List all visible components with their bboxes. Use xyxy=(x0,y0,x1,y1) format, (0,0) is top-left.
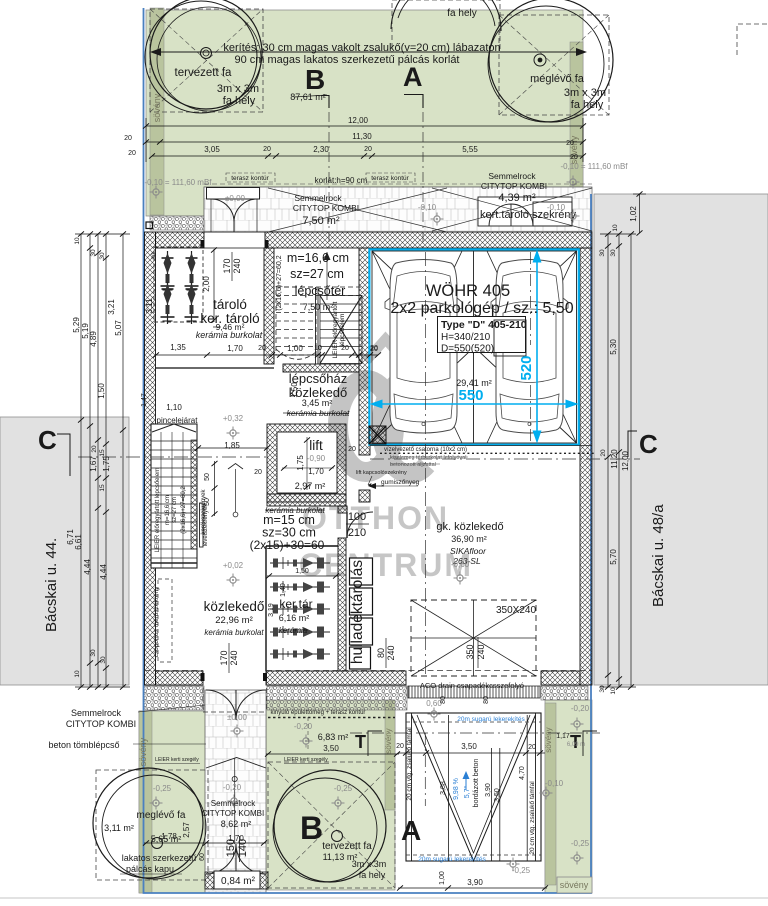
svg-text:7,50 m²: 7,50 m² xyxy=(302,215,340,227)
svg-text:20: 20 xyxy=(370,346,378,353)
svg-text:3,90: 3,90 xyxy=(467,878,483,887)
svg-text:(2x16,6)+27=60,2: (2x16,6)+27=60,2 xyxy=(276,255,283,310)
svg-text:80: 80 xyxy=(376,648,386,658)
svg-text:Semmelrock: Semmelrock xyxy=(71,708,122,718)
svg-text:3,50: 3,50 xyxy=(494,788,501,802)
svg-text:-0,25: -0,25 xyxy=(153,784,172,793)
svg-text:15: 15 xyxy=(99,449,106,457)
svg-text:3,11: 3,11 xyxy=(145,298,154,314)
svg-text:30: 30 xyxy=(90,649,97,657)
svg-text:20: 20 xyxy=(348,446,356,453)
svg-text:20: 20 xyxy=(263,146,271,153)
svg-text:3m x 3m: 3m x 3m xyxy=(352,859,387,869)
svg-text:3m x 3m: 3m x 3m xyxy=(564,87,606,99)
svg-text:1,40: 1,40 xyxy=(280,583,287,597)
svg-text:Semmelrock: Semmelrock xyxy=(294,193,342,203)
svg-text:-0,25: -0,25 xyxy=(334,784,353,793)
svg-text:20: 20 xyxy=(566,140,574,147)
svg-text:kerámia burkolat: kerámia burkolat xyxy=(196,330,263,340)
svg-text:1,75: 1,75 xyxy=(296,455,305,471)
svg-text:LEIER előregyártott lépcsőelem: LEIER előregyártott lépcsőelem xyxy=(155,468,161,552)
svg-text:kerítés: 30 cm magas vakolt zs: kerítés: 30 cm magas vakolt zsalukő(v=20… xyxy=(223,42,500,54)
svg-text:1,35: 1,35 xyxy=(170,343,186,352)
svg-text:B: B xyxy=(305,64,325,95)
svg-text:20m sugarú lekerekítés: 20m sugarú lekerekítés xyxy=(418,856,486,863)
svg-text:-0,20: -0,20 xyxy=(294,722,313,731)
svg-text:B: B xyxy=(300,810,323,846)
svg-text:1,00: 1,00 xyxy=(287,344,303,353)
svg-text:10: 10 xyxy=(74,237,81,245)
svg-text:4,39 m²: 4,39 m² xyxy=(498,192,536,204)
svg-text:Semmelrock: Semmelrock xyxy=(211,799,256,808)
svg-text:50: 50 xyxy=(204,473,211,481)
svg-text:tervezett fa: tervezett fa xyxy=(322,841,372,852)
svg-text:D=550(520): D=550(520) xyxy=(441,344,494,355)
svg-text:4,44: 4,44 xyxy=(99,564,108,580)
svg-text:-0,20: -0,20 xyxy=(223,783,242,792)
svg-text:36,90 m²: 36,90 m² xyxy=(451,534,487,544)
svg-text:WÖHR 405: WÖHR 405 xyxy=(426,282,510,300)
svg-text:5,65 m²: 5,65 m² xyxy=(151,834,182,844)
svg-text:1,70: 1,70 xyxy=(308,467,324,476)
svg-text:2,00: 2,00 xyxy=(202,276,211,292)
svg-text:6,09 m: 6,09 m xyxy=(567,742,585,748)
svg-text:3,11 m²: 3,11 m² xyxy=(104,823,134,833)
svg-text:-0,10: -0,10 xyxy=(547,203,566,212)
svg-text:20: 20 xyxy=(341,345,349,352)
svg-text:(2x16,6)+27=60,2: (2x16,6)+27=60,2 xyxy=(181,486,187,534)
svg-text:3,50: 3,50 xyxy=(461,742,477,751)
svg-text:60: 60 xyxy=(199,853,206,861)
svg-text:1,00: 1,00 xyxy=(439,871,446,885)
svg-text:lift kapcsolószekrény: lift kapcsolószekrény xyxy=(356,470,407,476)
svg-text:meglévő fa: meglévő fa xyxy=(137,810,186,821)
svg-text:kerámia burkolat: kerámia burkolat xyxy=(287,408,350,418)
svg-text:kerámia: kerámia xyxy=(279,626,308,635)
svg-text:520: 520 xyxy=(518,355,535,380)
svg-text:240: 240 xyxy=(232,258,242,273)
svg-text:5,29: 5,29 xyxy=(72,317,81,333)
svg-text:sövény: sövény xyxy=(152,93,162,122)
svg-text:12,00: 12,00 xyxy=(348,116,369,125)
svg-text:6,83 m²: 6,83 m² xyxy=(318,732,349,742)
svg-text:sz=27 cm: sz=27 cm xyxy=(290,267,344,281)
svg-text:170: 170 xyxy=(219,650,229,665)
svg-text:240: 240 xyxy=(386,645,396,660)
svg-text:C: C xyxy=(639,429,658,459)
svg-text:15: 15 xyxy=(99,484,106,492)
svg-text:1,67: 1,67 xyxy=(89,456,98,472)
svg-text:(2x15)+30=60: (2x15)+30=60 xyxy=(250,538,325,552)
svg-text:3,19: 3,19 xyxy=(268,603,275,617)
svg-text:80: 80 xyxy=(483,696,490,704)
svg-text:20: 20 xyxy=(258,345,266,352)
svg-text:20: 20 xyxy=(570,154,578,161)
svg-text:LEIER előregyártott: LEIER előregyártott xyxy=(332,301,339,358)
svg-text:1,50: 1,50 xyxy=(290,382,299,398)
svg-text:+0,32: +0,32 xyxy=(223,414,244,423)
svg-text:5,70: 5,70 xyxy=(609,549,618,565)
svg-text:20m sugarú lekerekítés: 20m sugarú lekerekítés xyxy=(457,716,525,723)
svg-text:lift: lift xyxy=(309,438,323,453)
svg-text:3,50: 3,50 xyxy=(323,744,339,753)
svg-text:hulladéktárolás: hulladéktárolás xyxy=(349,560,366,665)
svg-text:240: 240 xyxy=(476,644,486,659)
svg-text:csoportos mérőszekrény: csoportos mérőszekrény xyxy=(153,586,160,658)
svg-text:2,30: 2,30 xyxy=(313,145,329,154)
svg-text:30: 30 xyxy=(99,252,106,260)
svg-text:20: 20 xyxy=(91,445,98,453)
svg-text:CITYTOP KOMBI: CITYTOP KOMBI xyxy=(293,203,359,213)
svg-text:30: 30 xyxy=(100,656,107,664)
svg-text:meglévő fa: meglévő fa xyxy=(530,73,585,85)
svg-text:5,7°: 5,7° xyxy=(463,786,471,799)
svg-text:1,85: 1,85 xyxy=(224,441,240,450)
svg-text:tervezett fa: tervezett fa xyxy=(175,67,232,79)
svg-text:1,10: 1,10 xyxy=(166,403,182,412)
svg-text:30: 30 xyxy=(151,252,158,260)
svg-text:1,70: 1,70 xyxy=(227,344,243,353)
svg-text:1,50: 1,50 xyxy=(295,568,309,575)
svg-text:-0,10 = 111,60 mBf: -0,10 = 111,60 mBf xyxy=(144,178,212,187)
svg-text:kiselemes térburkolat lefolyóv: kiselemes térburkolat lefolyóval xyxy=(390,455,466,461)
svg-text:90 cm magas lakatos szerkezet: 90 cm magas lakatos szerkezetű pálcás ko… xyxy=(235,54,460,66)
svg-text:+0,02: +0,02 xyxy=(223,561,244,570)
svg-text:3m x 3m: 3m x 3m xyxy=(217,83,259,95)
svg-text:kerékszekrények: kerékszekrények xyxy=(201,488,207,534)
svg-text:A: A xyxy=(403,62,423,92)
svg-text:m=16,6 cm: m=16,6 cm xyxy=(165,495,171,525)
svg-text:ker.tár: ker.tár xyxy=(279,597,312,611)
svg-text:CITYTOP KOMBI: CITYTOP KOMBI xyxy=(481,181,547,191)
svg-text:sövény: sövény xyxy=(544,727,553,752)
svg-text:5,07: 5,07 xyxy=(114,320,123,336)
svg-text:5,55: 5,55 xyxy=(462,145,478,154)
svg-text:C: C xyxy=(38,425,57,455)
svg-text:-0,90: -0,90 xyxy=(307,454,326,463)
svg-text:20: 20 xyxy=(124,135,132,142)
svg-text:80: 80 xyxy=(440,696,447,704)
svg-text:1,47: 1,47 xyxy=(141,393,148,407)
svg-text:11,30: 11,30 xyxy=(352,132,372,141)
svg-text:1,75: 1,75 xyxy=(102,456,111,472)
svg-text:350X240: 350X240 xyxy=(496,605,536,616)
svg-text:fa hely: fa hely xyxy=(359,870,386,880)
svg-text:20: 20 xyxy=(128,150,136,157)
svg-text:3,90: 3,90 xyxy=(485,783,492,797)
svg-text:H=340/210: H=340/210 xyxy=(441,332,491,343)
svg-text:20 cm vtg. zsalukő támfal: 20 cm vtg. zsalukő támfal xyxy=(406,727,413,801)
svg-text:-0,10: -0,10 xyxy=(545,779,564,788)
svg-text:CITYTOP KOMBI: CITYTOP KOMBI xyxy=(202,809,264,818)
svg-text:20: 20 xyxy=(600,449,607,457)
svg-text:9,98 %: 9,98 % xyxy=(453,778,460,800)
svg-text:3,88: 3,88 xyxy=(440,781,447,795)
svg-text:terasz kontúr: terasz kontúr xyxy=(371,175,409,182)
svg-text:vízelvezető csatorna (10x2 cm): vízelvezető csatorna (10x2 cm) xyxy=(384,447,467,453)
svg-text:pincelejárat: pincelejárat xyxy=(157,416,199,425)
svg-text:4,70: 4,70 xyxy=(519,766,526,780)
svg-text:lépcsőtér: lépcsőtér xyxy=(295,284,346,298)
svg-text:T: T xyxy=(355,732,366,752)
svg-text:pálcás kapu: pálcás kapu xyxy=(126,864,174,874)
svg-text:150: 150 xyxy=(225,839,237,857)
svg-text:-0,25: -0,25 xyxy=(571,839,590,848)
svg-text:20 cm vtg. zsalukő támfal: 20 cm vtg. zsalukő támfal xyxy=(529,781,536,855)
svg-text:korlát:h=90 cm: korlát:h=90 cm xyxy=(315,176,368,185)
svg-text:10: 10 xyxy=(314,345,322,352)
svg-text:20: 20 xyxy=(528,744,536,751)
svg-text:12,00: 12,00 xyxy=(621,450,630,471)
svg-text:30: 30 xyxy=(610,249,617,257)
svg-text:550: 550 xyxy=(458,387,483,404)
svg-text:gumiszőnyeg: gumiszőnyeg xyxy=(381,479,420,486)
svg-text:±0,00: ±0,00 xyxy=(227,713,248,722)
svg-text:Semmelrock: Semmelrock xyxy=(488,171,536,181)
svg-text:fa hely: fa hely xyxy=(571,99,604,111)
svg-text:22,96 m²: 22,96 m² xyxy=(215,615,253,626)
svg-text:11,20: 11,20 xyxy=(610,449,619,469)
svg-text:bordázott beton: bordázott beton xyxy=(473,759,480,808)
svg-text:terasz kontúr: terasz kontúr xyxy=(231,175,269,182)
svg-text:140: 140 xyxy=(237,839,249,857)
svg-text:LEIER kerti szegély: LEIER kerti szegély xyxy=(155,757,199,763)
svg-text:CENTRUM: CENTRUM xyxy=(299,547,473,583)
svg-text:betonozott aljzattal: betonozott aljzattal xyxy=(390,462,436,468)
svg-text:0,84 m²: 0,84 m² xyxy=(221,876,256,887)
svg-text:3,21: 3,21 xyxy=(107,299,116,315)
svg-text:1,02: 1,02 xyxy=(629,206,638,222)
svg-text:30: 30 xyxy=(90,249,97,257)
svg-text:1,17: 1,17 xyxy=(556,733,570,740)
svg-text:-0,20: -0,20 xyxy=(571,704,590,713)
svg-text:-0,25: -0,25 xyxy=(512,866,531,875)
svg-text:8,62 m²: 8,62 m² xyxy=(221,819,252,829)
svg-text:CITYTOP KOMBI: CITYTOP KOMBI xyxy=(66,719,136,729)
svg-text:fa hely: fa hely xyxy=(223,95,256,107)
svg-text:lakatos szerkezetű: lakatos szerkezetű xyxy=(122,853,197,863)
svg-text:30: 30 xyxy=(599,685,606,693)
svg-text:Bácskai u. 48/a: Bácskai u. 48/a xyxy=(650,504,667,607)
svg-text:6,16 m²: 6,16 m² xyxy=(279,613,310,623)
svg-text:20: 20 xyxy=(254,469,262,476)
svg-text:10: 10 xyxy=(610,687,617,695)
svg-text:10: 10 xyxy=(612,224,619,232)
svg-text:±0,00: ±0,00 xyxy=(225,194,246,203)
svg-text:20: 20 xyxy=(396,743,404,750)
svg-text:-0,60: -0,60 xyxy=(451,560,470,569)
svg-text:5,30: 5,30 xyxy=(609,339,618,355)
svg-text:2,57: 2,57 xyxy=(182,822,191,838)
svg-text:3,45 m²: 3,45 m² xyxy=(302,398,333,408)
svg-text:lépcsőelem: lépcsőelem xyxy=(339,314,346,347)
svg-text:kinyúló épülettömeg + terasz k: kinyúló épülettömeg + terasz kontúr xyxy=(271,710,366,716)
svg-text:m=16,6 cm: m=16,6 cm xyxy=(287,251,349,265)
svg-text:SIKAfloor: SIKAfloor xyxy=(450,546,487,556)
svg-text:sövény: sövény xyxy=(560,880,589,890)
svg-text:170: 170 xyxy=(222,258,232,273)
svg-text:240: 240 xyxy=(229,650,239,665)
svg-text:ACO drain csapadékcsszefolyó: ACO drain csapadékcsszefolyó xyxy=(420,681,524,690)
svg-text:sz=27 cm: sz=27 cm xyxy=(172,497,178,523)
svg-text:4,44: 4,44 xyxy=(83,559,92,575)
svg-text:beton tömblépcső: beton tömblépcső xyxy=(48,740,119,750)
svg-text:sövény: sövény xyxy=(384,728,393,753)
svg-text:7,50 m²: 7,50 m² xyxy=(303,302,334,312)
svg-text:1,50: 1,50 xyxy=(97,383,106,399)
svg-text:sövény: sövény xyxy=(138,737,148,766)
svg-text:350: 350 xyxy=(465,644,475,659)
svg-text:fa hely: fa hely xyxy=(447,8,476,19)
svg-text:3,05: 3,05 xyxy=(204,145,220,154)
svg-text:6,61: 6,61 xyxy=(74,534,83,550)
svg-text:közlekedő: közlekedő xyxy=(204,599,265,614)
svg-text:4,89: 4,89 xyxy=(89,331,98,347)
svg-text:tároló: tároló xyxy=(213,297,247,312)
svg-text:2,97 m²: 2,97 m² xyxy=(295,481,326,491)
svg-text:100: 100 xyxy=(348,511,366,523)
svg-text:20: 20 xyxy=(364,146,372,153)
svg-text:10: 10 xyxy=(74,670,81,678)
svg-text:Type "D" 405-210: Type "D" 405-210 xyxy=(441,319,527,331)
svg-text:gk. közlekedő: gk. közlekedő xyxy=(436,521,503,533)
svg-text:kerámia burkolat: kerámia burkolat xyxy=(204,628,264,637)
svg-text:Bácskai u. 44.: Bácskai u. 44. xyxy=(43,538,60,632)
svg-text:210: 210 xyxy=(348,527,366,539)
svg-text:2x2 parkológép / sz.: 5,50: 2x2 parkológép / sz.: 5,50 xyxy=(390,300,573,317)
svg-text:-0,10: -0,10 xyxy=(418,203,437,212)
svg-text:A: A xyxy=(401,815,421,846)
svg-text:LEIER kerti szegély: LEIER kerti szegély xyxy=(284,757,328,763)
svg-text:30: 30 xyxy=(599,249,606,257)
